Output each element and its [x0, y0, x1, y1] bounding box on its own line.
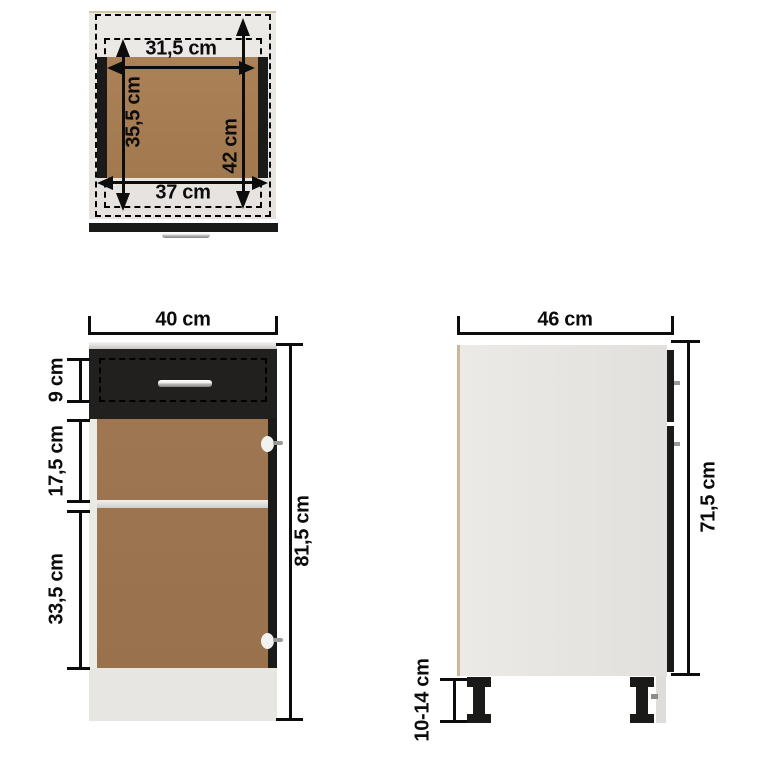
- leg-adjuster-pin: [651, 694, 658, 699]
- product-dimension-diagram: 31,5 cm 35,5 cm 42 cm 37 cm: [0, 0, 767, 767]
- dim-label-legs-height: 10-14 cm: [412, 658, 435, 741]
- leg-back: [630, 677, 660, 723]
- leg-stem: [636, 686, 648, 715]
- leg-bottom-flange: [467, 714, 491, 723]
- side-panel: [457, 345, 667, 676]
- dim-tick: [671, 673, 700, 676]
- side-door-edge: [667, 426, 674, 672]
- side-door-handle: [674, 442, 680, 446]
- dim-tick: [671, 316, 674, 335]
- dim-line-depth: [458, 332, 673, 335]
- leg-front: [467, 677, 491, 723]
- dim-line-body-height: [687, 340, 690, 676]
- cabinet-side-view: 46 cm 71,5 cm 10-14 cm: [0, 0, 767, 767]
- side-drawer-front-edge: [667, 350, 674, 422]
- dim-line-legs-height: [453, 678, 456, 723]
- dim-tick: [440, 720, 467, 723]
- dim-label-body-height: 71,5 cm: [698, 461, 721, 532]
- side-panel-back-edge: [457, 345, 460, 676]
- side-drawer-handle: [674, 381, 680, 385]
- dim-tick: [671, 340, 700, 343]
- leg-bottom-flange: [630, 714, 654, 723]
- leg-stem: [473, 686, 485, 715]
- dim-label-depth: 46 cm: [537, 309, 592, 332]
